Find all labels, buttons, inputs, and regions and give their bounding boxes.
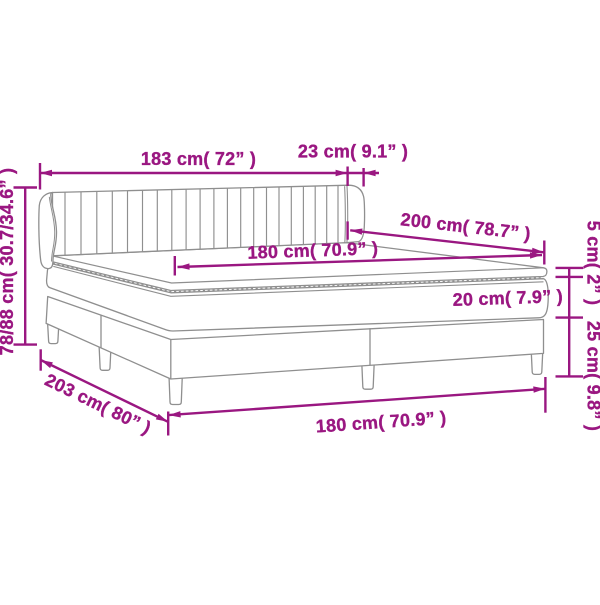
svg-text:183 cm( 72” ): 183 cm( 72” ) [141,149,256,169]
svg-text:25 cm( 9.8” ): 25 cm( 9.8” ) [584,321,600,431]
svg-text:78/88 cm( 30.7/34.6” ): 78/88 cm( 30.7/34.6” ) [0,168,17,356]
svg-text:23 cm( 9.1” ): 23 cm( 9.1” ) [298,142,408,162]
svg-text:5 cm( 2” ): 5 cm( 2” ) [584,221,600,306]
svg-text:20 cm( 7.9” ): 20 cm( 7.9” ) [452,286,563,310]
